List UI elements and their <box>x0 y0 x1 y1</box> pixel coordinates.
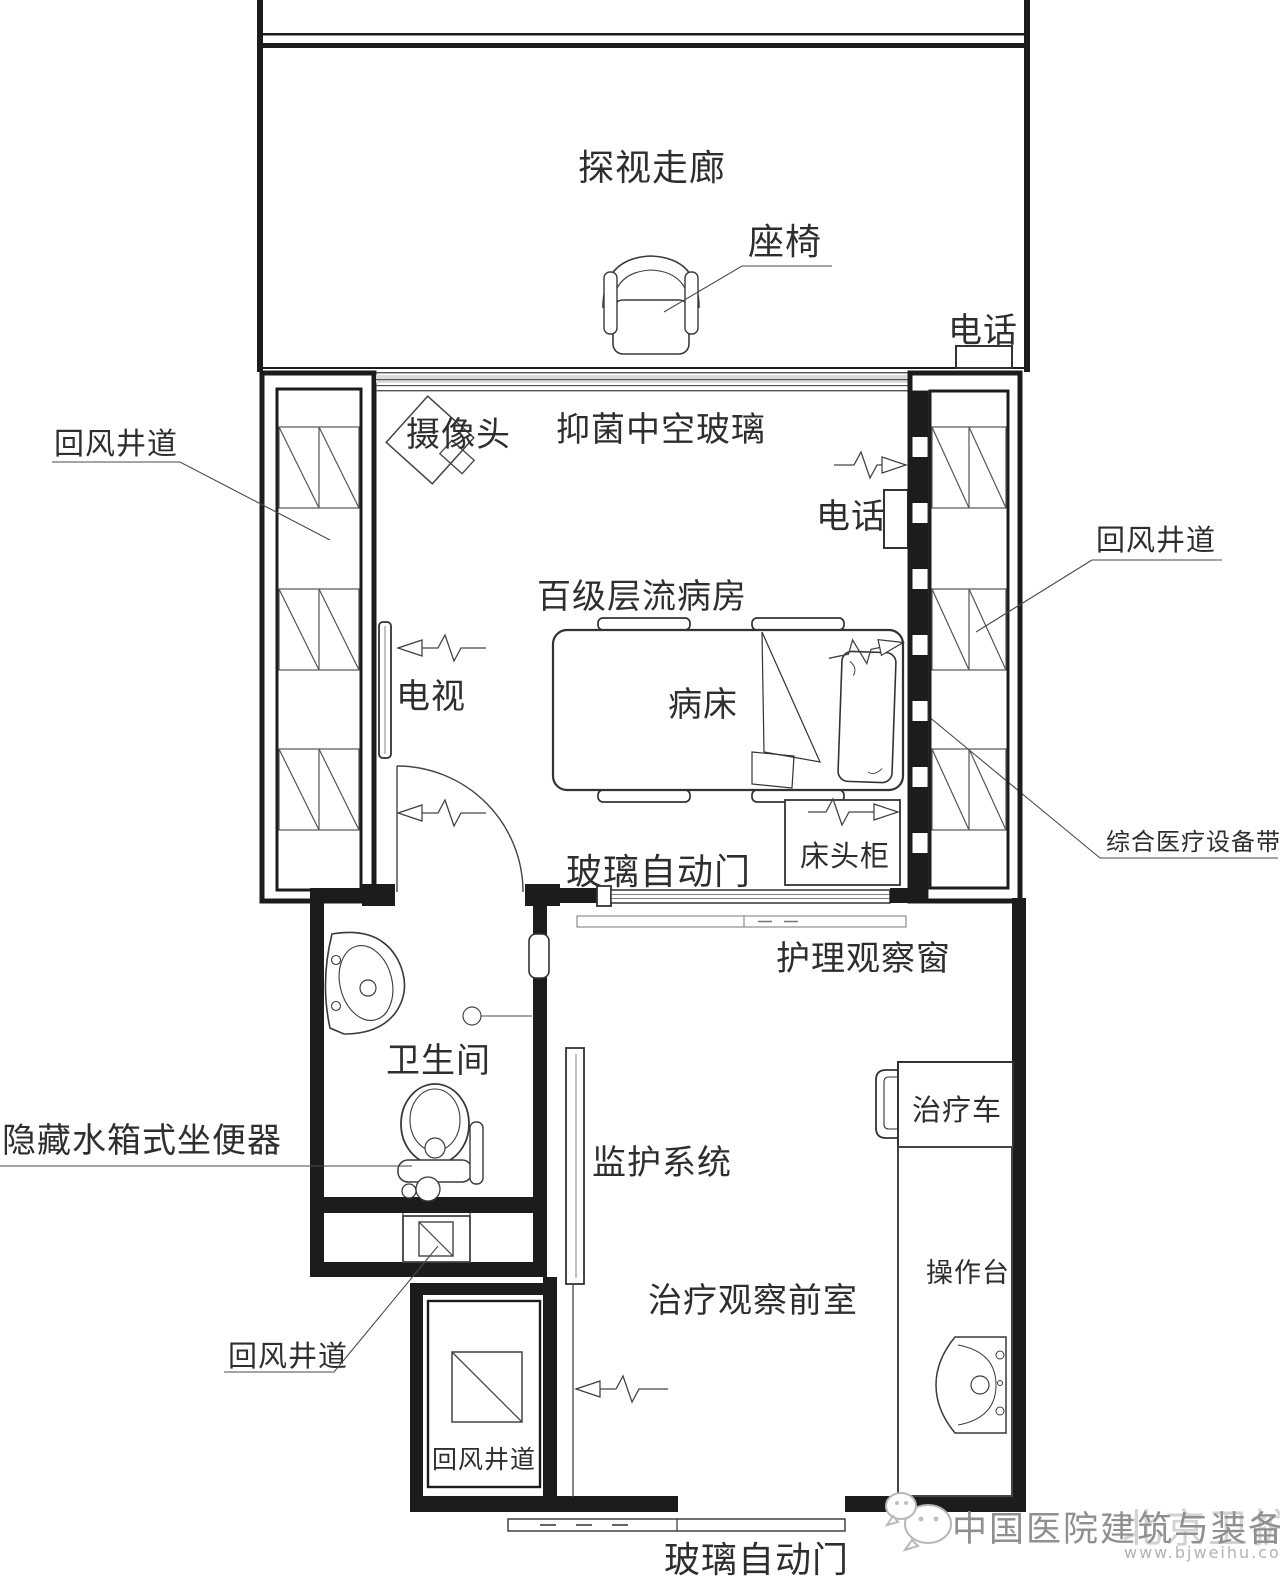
glass-label: 抑菌中空玻璃 <box>556 410 766 450</box>
bottom-auto-door-label: 玻璃自动门 <box>664 1540 849 1579</box>
left-return-air-shaft: 回风井道 <box>52 373 374 901</box>
cart-handle-inner <box>884 1077 898 1129</box>
visitor-chair <box>603 256 699 354</box>
flush-control <box>402 1184 416 1198</box>
cart-label: 治疗车 <box>912 1093 1002 1127</box>
duct-symbol <box>452 1352 522 1422</box>
ward-phone-box <box>884 490 908 548</box>
anteroom-right-wall <box>1012 898 1026 1512</box>
right-shaft-leader <box>976 560 1222 632</box>
bed-rail <box>752 618 844 630</box>
worktop-label: 操作台 <box>926 1258 1010 1289</box>
corridor-label: 探视走廊 <box>578 148 726 189</box>
observation-window-label: 护理观察窗 <box>776 939 951 979</box>
bed-rail <box>598 790 690 802</box>
lower-shaft-right-wall <box>543 1277 557 1496</box>
anteroom-label: 治疗观察前室 <box>648 1281 858 1321</box>
grab-bar <box>470 1122 483 1184</box>
hatch-block <box>279 427 359 508</box>
floor-plan-drawing: 探视走廊 座椅 电话 <box>0 0 1280 1579</box>
bathroom-left-wall <box>310 893 324 1277</box>
nursing-observation-window <box>577 890 906 927</box>
floor-drain <box>463 1007 481 1025</box>
glass-line <box>376 385 908 386</box>
corridor: 探视走廊 座椅 电话 <box>257 0 1030 372</box>
chair-armrest-right <box>685 272 698 334</box>
hatch-block <box>279 749 359 830</box>
lower-shaft-label: 回风井道 <box>432 1445 536 1474</box>
compartment-bottom-wall <box>310 1262 547 1277</box>
tv-label: 电视 <box>396 677 466 717</box>
laminar-flow-ward: 百级层流病房 电话 电视 <box>379 452 908 893</box>
camera-label: 摄像头 <box>406 415 511 455</box>
duct-symbol <box>419 1222 453 1256</box>
watermark-site-text: www.bjweihu.com <box>1124 1543 1280 1562</box>
bathroom-label: 卫生间 <box>386 1041 491 1081</box>
right-shaft-hatch-blocks <box>932 427 1006 830</box>
right-shaft-label: 回风井道 <box>1096 523 1216 557</box>
duct-shaft-label: 回风井道 <box>228 1339 348 1373</box>
glass-line <box>376 372 908 373</box>
phone-pointer-arrow <box>834 452 906 478</box>
equipment-band-label: 综合医疗设备带 <box>1106 828 1280 856</box>
camera: 摄像头 <box>386 396 511 484</box>
door-pocket-niche <box>529 934 549 978</box>
bathroom: 卫生间 隐藏水箱式坐便器 <box>0 893 549 1277</box>
flush-control <box>416 1177 440 1201</box>
hatch-block <box>932 749 1006 830</box>
left-shaft-label: 回风井道 <box>54 427 178 462</box>
corridor-floor-line <box>257 367 1030 369</box>
glass-line <box>376 390 908 391</box>
window-end-cap <box>597 886 611 906</box>
corridor-top-wall-line <box>257 33 1030 36</box>
ward-label: 百级层流病房 <box>537 577 747 617</box>
lower-shaft-left-wall <box>410 1283 423 1510</box>
chair-seat <box>613 300 689 354</box>
medical-equipment-band: 综合医疗设备带 <box>908 391 1280 900</box>
treatment-anteroom: 监护系统 治疗观察前室 治疗车 操作台 玻璃自动门 <box>410 898 1026 1579</box>
bottom-sliding-door <box>508 1519 845 1531</box>
lower-shaft-top-wall <box>410 1283 556 1295</box>
left-shaft-leader <box>52 462 330 540</box>
bed-rail <box>598 618 690 630</box>
pillow <box>838 651 897 783</box>
monitoring-panel <box>566 1048 584 1284</box>
window-sliding-panel <box>577 916 906 927</box>
lower-return-air-shaft: 回风井道 <box>410 1277 557 1510</box>
corridor-right-wall <box>1024 0 1030 372</box>
hatch-block <box>279 589 359 670</box>
tv-pointer-arrow-upper <box>398 635 486 661</box>
monitor-label: 监护系统 <box>592 1143 732 1183</box>
chair-armrest-left <box>604 272 617 334</box>
hatch-block <box>932 427 1006 508</box>
toilet-outlet <box>425 1138 445 1158</box>
bed-label: 病床 <box>668 685 738 725</box>
floor-plan-page: 探视走廊 座椅 电话 <box>0 0 1280 1579</box>
cart-handle <box>876 1070 898 1138</box>
toilet <box>398 1084 483 1201</box>
worktop <box>898 1147 1012 1496</box>
right-return-air-shaft: 回风井道 <box>910 373 1222 901</box>
corridor-top-wall <box>257 43 1030 48</box>
bedside-cabinet-label: 床头柜 <box>800 839 890 873</box>
toilet-label: 隐藏水箱式坐便器 <box>2 1121 282 1161</box>
left-shaft-hatch-blocks <box>279 427 359 830</box>
wash-basin <box>325 932 404 1034</box>
glass-line <box>376 379 908 380</box>
seat-label: 座椅 <box>748 222 822 263</box>
tv-pointer-arrow-lower <box>398 800 486 826</box>
hatch-block <box>932 589 1006 670</box>
wall-segment <box>890 888 910 903</box>
ward-bottom-wall: 护理观察窗 <box>310 884 951 979</box>
wall-pointer-arrow <box>576 1376 668 1402</box>
console-sink <box>936 1337 1006 1433</box>
ward-auto-door-label: 玻璃自动门 <box>566 852 751 893</box>
bottom-wall-left <box>410 1496 678 1512</box>
door-swing-arc <box>397 766 523 892</box>
corridor-phone-box <box>956 346 1012 368</box>
door-jamb-left <box>362 884 395 906</box>
ward-phone-label: 电话 <box>816 497 886 537</box>
corridor-left-wall <box>257 0 263 372</box>
